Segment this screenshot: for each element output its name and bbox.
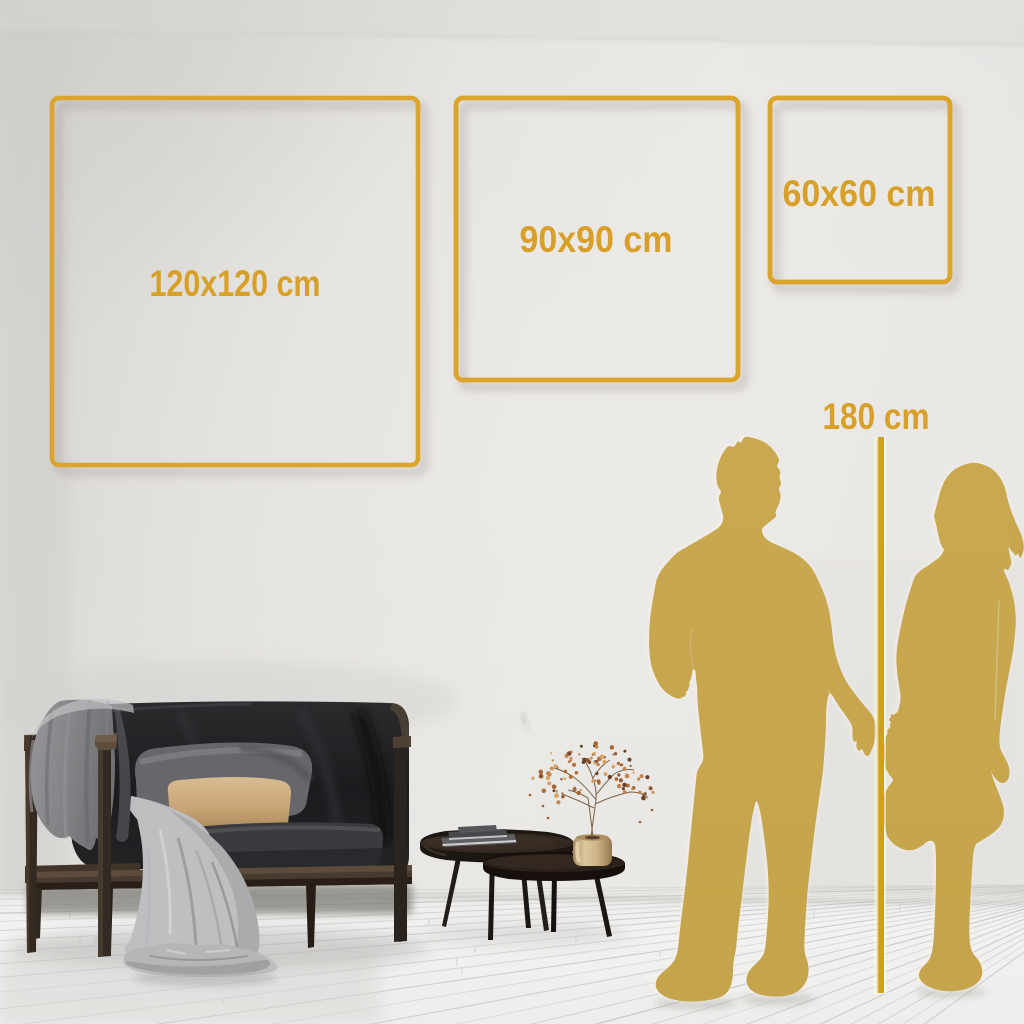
svg-text:60x60 cm: 60x60 cm bbox=[783, 173, 936, 214]
svg-text:180 cm: 180 cm bbox=[823, 396, 930, 437]
svg-text:120x120 cm: 120x120 cm bbox=[150, 263, 321, 304]
svg-text:90x90 cm: 90x90 cm bbox=[520, 219, 673, 260]
